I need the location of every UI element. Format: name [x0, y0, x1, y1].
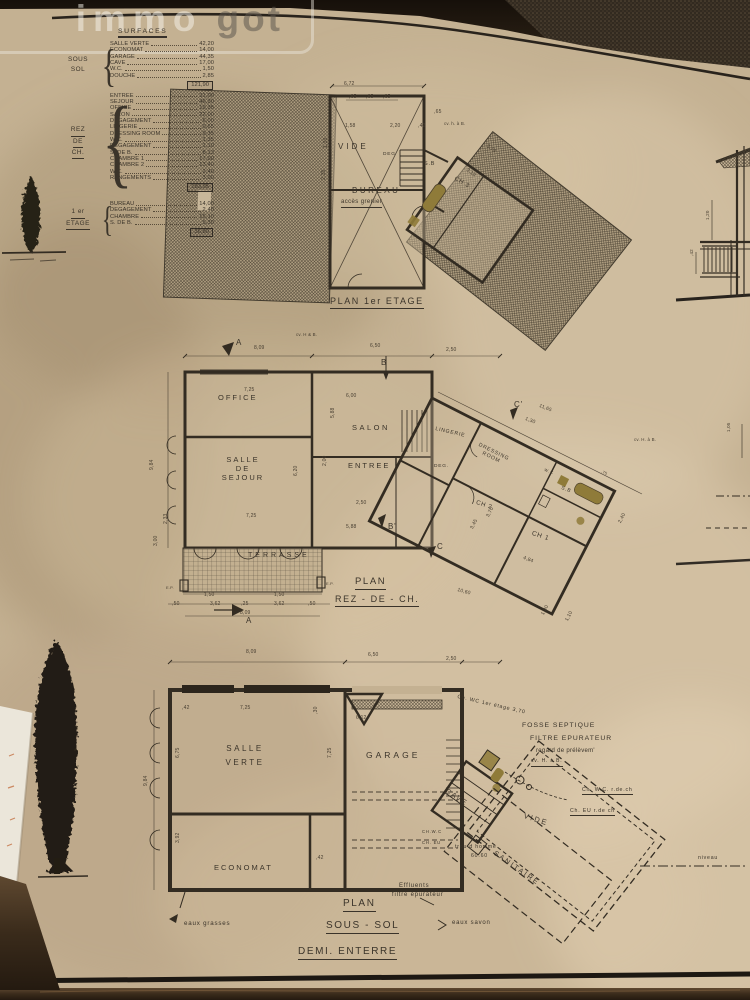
room-label-deg: DEG [383, 152, 396, 158]
annotation-eaux-grasses: eaux grasses [184, 920, 230, 927]
dim-label: 1,50 [204, 593, 215, 598]
table-row: DOUCHE2,85 [110, 73, 214, 79]
annotation-chwc-rdc: Ch. W.C. r.de.ch [582, 787, 633, 795]
room-label-terrasse: TERRASSE [248, 552, 310, 560]
section-marker-c: C [437, 542, 444, 551]
dim-label: ,30 [314, 706, 319, 714]
annotation-cv-hb: cv. H. à B. [634, 438, 656, 442]
dim-label: ,75 [601, 470, 608, 476]
room-label-garage: GARAGE [366, 750, 420, 760]
room-label-vide: VIDE [338, 142, 369, 151]
dim-label: ,42 [690, 249, 695, 256]
room-label-office: OFFICE [218, 394, 258, 403]
room-label-sb: S.B [424, 161, 435, 167]
dim-label: ,42 [418, 124, 426, 129]
surfaces-group-rez: REZDECH. ENTREE31,00 SEJOUR46,30 OFFICE1… [56, 93, 214, 192]
dim-label: 9,84 [144, 775, 149, 786]
dim-label: 6,50 [370, 344, 381, 349]
room-label-lingerie: LINGERIE [435, 426, 466, 439]
dim-label: 3,45 [470, 519, 479, 531]
plan-etage-title: PLAN 1er ETAGE [330, 296, 424, 309]
dim-label: 7,25 [246, 514, 257, 519]
dim-label: 2,50 [446, 657, 457, 662]
surfaces-table: SURFACES SOUSSOL SALLE VERTE42,20 ECONOM… [56, 20, 214, 237]
dim-label: ,65 [434, 110, 442, 115]
annotation-fosse-septique: FOSSE SEPTIQUE [522, 722, 595, 730]
annotation-cheu-rdc: Ch. EU r.de ch [570, 808, 615, 816]
section-marker-a: A [236, 338, 242, 347]
dim-label: 6,50 [368, 653, 379, 658]
brace [102, 203, 109, 235]
dim-label: 1,30 [541, 605, 550, 617]
dim-label: ,65 [349, 95, 357, 100]
dim-label: ,65 [366, 95, 374, 100]
watermark-text-got: got [216, 0, 283, 40]
surfaces-group-etage: 1 erETAGE BUREAU14,00 DEGAGEMENT2,40 CHA… [56, 201, 214, 237]
photo-of-architect-plan: immo got SURFACES SOUSSOL SALLE VERTE42,… [0, 0, 750, 1000]
dim-label: 6,00 [346, 394, 357, 399]
surfaces-group-sous-sol: SOUSSOL SALLE VERTE42,20 ECONOMAT14,00 G… [56, 41, 214, 90]
plan-soussol-title-2: SOUS - SOL [326, 920, 399, 934]
dim-label: ,25 [241, 602, 249, 607]
dim-label: 6,12 [356, 716, 367, 721]
dim-label: 8,09 [254, 346, 265, 351]
annotation-filtre-epurateur: FILTRE EPURATEUR [530, 735, 612, 743]
room-label-sejour: SALLE DE SEJOUR [210, 456, 276, 483]
section-marker-b: B [381, 358, 387, 367]
room-label-wc: W.C [543, 468, 554, 476]
annotation-acces-grenier: accès grenier [341, 199, 382, 208]
dim-label: 1,10 [565, 611, 574, 623]
dim-label: 3,00 [154, 535, 159, 546]
dim-label: ,50 [308, 602, 316, 607]
room-label-cave: CAVE [444, 788, 469, 808]
dim-label: 5,88 [331, 407, 336, 418]
plan-soussol-title-1: PLAN [343, 898, 376, 912]
room-label-economat: ECONOMAT [214, 864, 273, 873]
dim-label: 1,05 [727, 422, 732, 432]
annotation-eaux-savon: eaux savon [452, 920, 491, 927]
dim-label: 2,40 [618, 513, 627, 525]
section-marker-a2: A [246, 616, 252, 625]
table-row: S. DE B.5,30 [110, 220, 214, 226]
dim-label: 8,09 [240, 611, 251, 616]
dim-label: 3,62 [210, 602, 221, 607]
dim-label: ,42 [182, 706, 190, 711]
ep-mark: E.P. [326, 582, 334, 586]
dim-label: 7,25 [240, 706, 251, 711]
dim-label: 3,70 [486, 507, 495, 519]
annotation-cv-hb: cv. H. à B. [531, 759, 563, 767]
floor-total: 36,80 [110, 228, 213, 237]
room-label-ch1: CH 1 [531, 530, 550, 543]
dim-label: 2,50 [446, 348, 457, 353]
room-label-salon: SALON [352, 424, 390, 433]
surfaces-title: SURFACES [118, 28, 167, 38]
room-label-vide: VIDE [522, 812, 549, 828]
dim-label: ,50 [172, 602, 180, 607]
dim-label: 2,20 [390, 124, 401, 129]
dim-label: 2,50 [356, 501, 367, 506]
dim-label: 2,35 [322, 169, 327, 180]
floor-label: 1 erETAGE [56, 207, 100, 230]
plan-rdc-title-1: PLAN [355, 576, 386, 590]
annotation-filtre2: filtre épurateur [392, 892, 444, 899]
ep-mark: E.P. [166, 586, 174, 590]
dim-label: 5,88 [346, 525, 357, 530]
dim-label: 3,62 [274, 602, 285, 607]
brace [102, 45, 109, 86]
annotation-60-60: 60.60 [471, 853, 488, 859]
dim-label: 3,79 [485, 144, 496, 154]
dim-label: 1,50 [274, 593, 285, 598]
dim-label: 11,65 [538, 404, 552, 413]
annotation-trou-homme: trou d homme [455, 844, 497, 850]
dim-label: 10,60 [457, 588, 471, 597]
floor-label: REZDECH. [56, 125, 100, 159]
room-label-sb: S.B [560, 486, 572, 495]
dim-label: 1,20 [706, 210, 711, 220]
room-label-salle-verte: SALLE VERTE [212, 742, 278, 769]
dim-label: 4,84 [522, 556, 534, 564]
room-label-entree: ENTREE [348, 462, 390, 471]
annotation-chwc-etage: Ch. WC 1er étage 3,70 [457, 694, 526, 716]
section-marker-c-prime: C' [514, 400, 523, 409]
annotation-regard: regard de prélèvem' [536, 748, 595, 755]
annotation-chwc-small: CH.W.C [422, 830, 442, 835]
floor-label: SOUSSOL [56, 55, 100, 75]
dim-label: 7,25 [244, 388, 255, 393]
section-marker-b-prime: B' [388, 522, 396, 531]
room-label-deg: DEG. [434, 464, 449, 470]
dim-label: 1,33 [324, 137, 329, 148]
annotation-cv-hb: cv. H & B. [296, 333, 317, 337]
brace [102, 97, 109, 187]
dim-label: 2,00 [323, 455, 328, 466]
dim-label: 3,92 [176, 832, 181, 843]
dim-label: 1,30 [524, 417, 536, 425]
dim-label: 6,20 [294, 465, 299, 476]
dim-label: 3,10 [465, 168, 476, 178]
room-label-dressing: DRESSING ROOM [475, 442, 510, 468]
plan-soussol-title-3: DEMI. ENTERRE [298, 946, 397, 960]
annotation-cheu-small: CH. EU [422, 841, 441, 846]
dim-label: 6,72 [344, 82, 355, 87]
plan-rdc-title-2: REZ - DE - CH. [335, 594, 419, 607]
room-label-ch3: CH 3 [452, 176, 470, 191]
dim-label: 8,09 [246, 650, 257, 655]
dim-label: 1,58 [345, 124, 356, 129]
dim-label: ,65 [383, 95, 391, 100]
dim-label: 6,75 [176, 747, 181, 758]
dim-label: 7,25 [328, 747, 333, 758]
annotation-effluents: Effluents [399, 883, 429, 890]
room-label-sanitaire: SANITAIRE [491, 850, 540, 888]
annotation-cv-hb: cv. h. à B. [444, 122, 465, 126]
dim-label: ,42 [316, 856, 324, 861]
annotation-niveau: niveau [698, 855, 718, 861]
room-label-bureau: BUREAU [352, 186, 400, 195]
dim-label: 9,84 [150, 459, 155, 470]
dim-label: 2,33 [164, 513, 169, 524]
